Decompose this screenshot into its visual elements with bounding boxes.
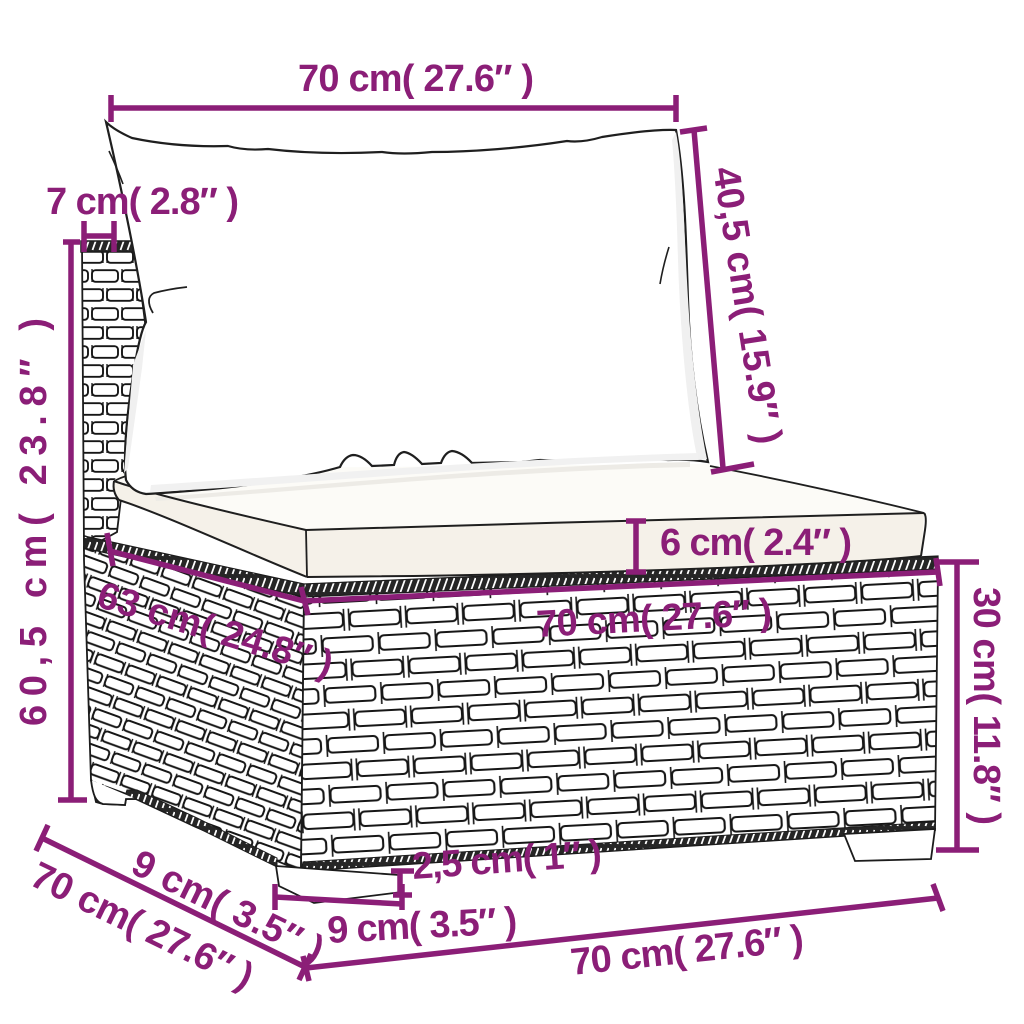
svg-text:7 cm( 2.8″ ): 7 cm( 2.8″ ) xyxy=(46,181,239,223)
svg-text:30 cm( 11.8″ ): 30 cm( 11.8″ ) xyxy=(965,587,1007,825)
svg-text:6 cm( 2.4″ ): 6 cm( 2.4″ ) xyxy=(660,522,852,564)
svg-text:70 cm( 27.6″ ): 70 cm( 27.6″ ) xyxy=(298,58,534,100)
